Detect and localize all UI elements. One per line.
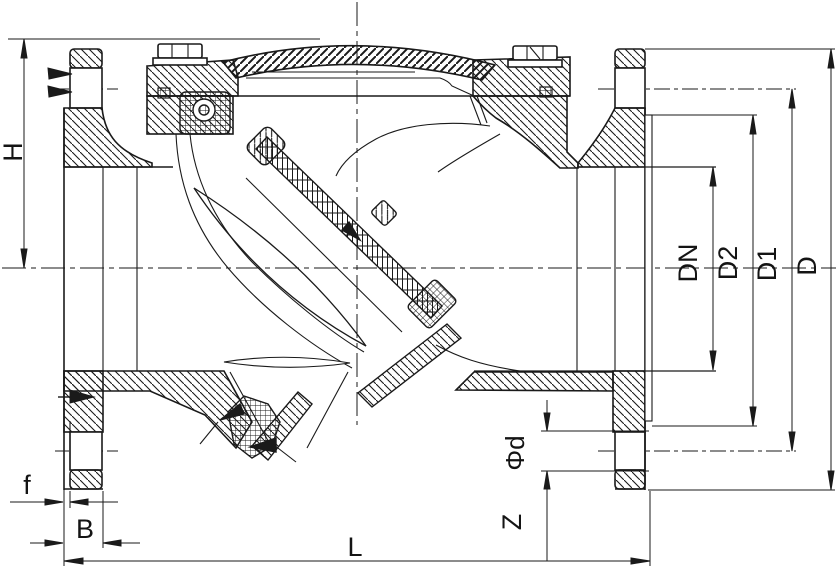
valve-section-drawing: H f B L Φd Z DN D2 D1 D <box>0 0 838 568</box>
right-flange-bottom-bolt-hole <box>615 432 645 470</box>
seat-cone-right-edge <box>307 372 348 448</box>
right-flange-top-lug <box>615 49 645 68</box>
right-flange-top-bolt-hole <box>615 68 645 108</box>
bolt-head-left <box>158 44 202 58</box>
seat-ring-section <box>358 324 461 407</box>
left-flange-bottom-lug <box>70 470 102 489</box>
label-DN: DN <box>673 244 703 283</box>
gasket-left <box>158 88 170 98</box>
seat-bore-lens <box>224 357 350 367</box>
label-D2: D2 <box>713 246 743 281</box>
left-flange-top-bolt-hole <box>70 68 102 108</box>
label-D1: D1 <box>752 247 782 282</box>
left-flange <box>64 49 152 490</box>
dim-phid-Z <box>544 400 550 561</box>
dim-D <box>828 49 834 490</box>
right-flange-bottom-lug <box>615 470 645 489</box>
bonnet <box>147 44 570 98</box>
left-flange-top-hub <box>64 108 152 167</box>
bonnet-bolt-left <box>153 44 207 65</box>
label-phid: Φd <box>500 435 530 470</box>
right-flange-bottom-hub <box>613 371 645 432</box>
gasket-right <box>540 87 552 97</box>
stud-mid-boss <box>371 200 398 227</box>
bonnet-dome <box>223 46 495 80</box>
right-flange <box>578 49 652 490</box>
body-top-flange-right <box>473 96 578 168</box>
bonnet-bolt-right <box>508 46 562 67</box>
bolt-washer-right <box>508 60 562 67</box>
bottom-wall-right <box>456 372 613 391</box>
right-raised-face <box>645 115 652 421</box>
bolt-washer-left <box>153 58 207 65</box>
joint-arrow-upper <box>48 68 72 79</box>
right-flange-top-hub <box>578 108 645 167</box>
label-H: H <box>0 142 28 162</box>
disc-plate <box>194 178 402 346</box>
left-flange-bottom-bolt-hole <box>70 432 102 470</box>
drawing-canvas: H f B L Φd Z DN D2 D1 D <box>0 0 838 568</box>
seat-assembly <box>200 324 461 462</box>
label-D: D <box>792 256 822 276</box>
left-flange-top-lug <box>70 49 102 68</box>
hinge-pin-core <box>199 105 209 115</box>
label-Z: Z <box>497 514 527 531</box>
joint-arrow-lower <box>48 86 72 97</box>
disc-assembly <box>180 92 457 346</box>
label-f: f <box>23 470 31 500</box>
label-L: L <box>347 532 362 562</box>
label-B: B <box>76 514 94 544</box>
